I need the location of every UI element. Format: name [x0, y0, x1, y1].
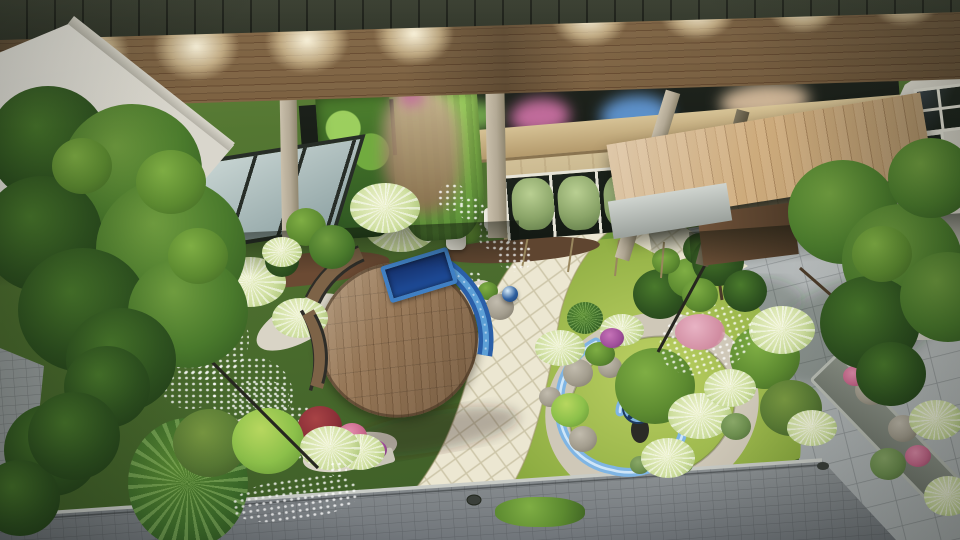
hedge-trunk-posts: [522, 236, 664, 278]
white-pot: [484, 208, 502, 230]
hedge-post: [568, 238, 573, 272]
silver-grass: [262, 237, 302, 267]
right-tree-highlight: [852, 226, 912, 282]
white-pot: [446, 226, 466, 250]
silver-grass: [350, 183, 420, 233]
ivy-column: [28, 392, 120, 480]
hedge-post: [615, 240, 619, 276]
white-flower-ball: [458, 197, 484, 221]
right-tree-lower-foliage: [856, 342, 926, 406]
hedge-post: [661, 242, 664, 278]
lamp-post-pole: [658, 252, 712, 352]
left-tree-highlight: [136, 150, 206, 214]
lamp-head: [708, 246, 717, 255]
garden-render: [0, 0, 960, 540]
curved-bench-lower: [301, 311, 326, 391]
left-tree-highlight: [52, 138, 112, 194]
magenta-flower-shrub: [497, 240, 533, 272]
topiary-ball: [309, 225, 355, 269]
left-tree-highlight: [168, 228, 228, 284]
